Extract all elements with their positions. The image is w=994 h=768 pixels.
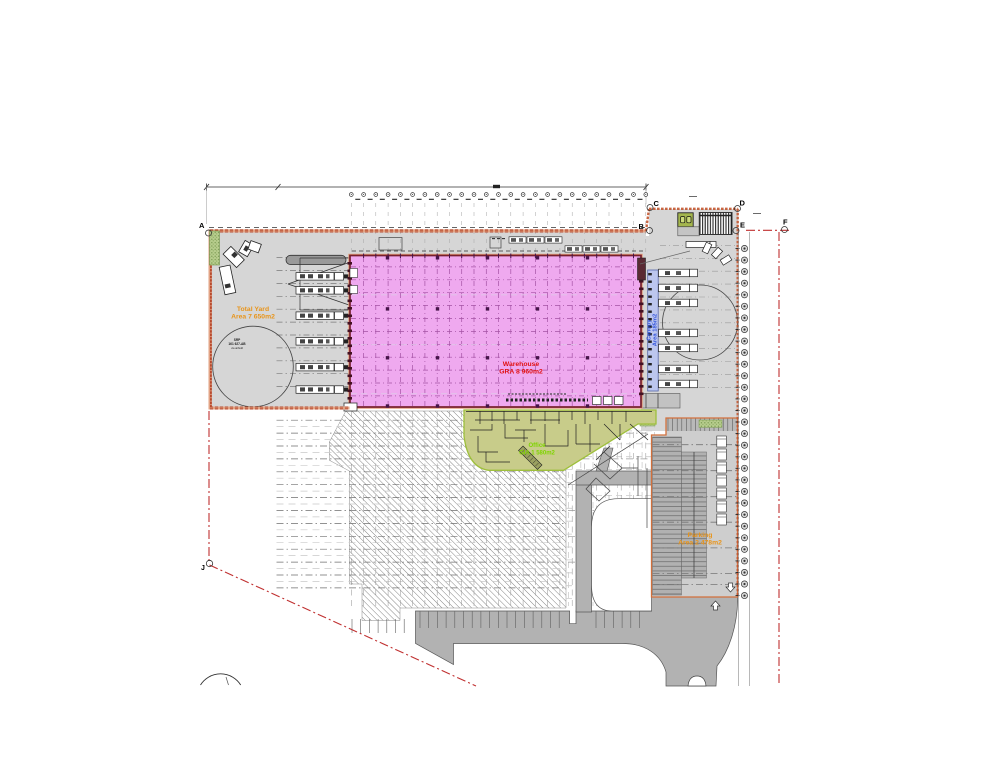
svg-text:B: B	[639, 222, 645, 231]
svg-text:Area 7 650m2: Area 7 650m2	[231, 314, 275, 321]
svg-text:C: C	[654, 199, 660, 208]
svg-text:GRA 8 960m2: GRA 8 960m2	[499, 369, 543, 376]
svg-text:E: E	[740, 221, 745, 230]
svg-text:Area 2 478m2: Area 2 478m2	[678, 540, 722, 547]
svg-text:D: D	[740, 199, 746, 208]
svg-text:Parking: Parking	[688, 532, 713, 539]
svg-text:Warehouse: Warehouse	[503, 361, 540, 368]
svg-text:J: J	[201, 565, 205, 572]
svg-text:via airfield: via airfield	[231, 346, 243, 350]
svg-text:161 627-AB: 161 627-AB	[228, 342, 246, 346]
svg-text:GIA 1 580m2: GIA 1 580m2	[519, 451, 555, 457]
svg-text:F: F	[783, 218, 788, 227]
svg-text:A: A	[199, 221, 205, 230]
svg-text:Office: Office	[528, 443, 546, 449]
svg-text:Area 185m2: Area 185m2	[653, 314, 659, 347]
svg-text:Total Yard: Total Yard	[237, 306, 269, 313]
